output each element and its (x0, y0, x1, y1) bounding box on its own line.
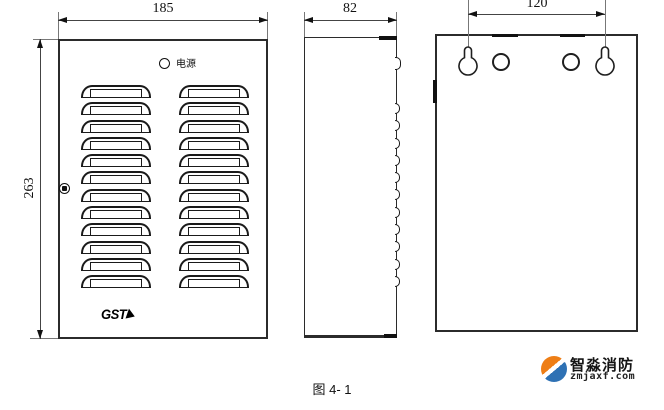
bump (395, 207, 400, 218)
bump (395, 241, 400, 252)
dim-arrow-down (37, 330, 43, 339)
dim-label-side-depth: 82 (341, 1, 359, 17)
side-bottom-mark (384, 334, 397, 338)
bump (395, 259, 400, 270)
dim-arrow-left (58, 17, 67, 23)
figure-caption: 图 4- 1 (0, 379, 664, 398)
technical-drawing-page: 185 263 电源 GST 82 120 (0, 0, 664, 410)
watermark-site: zmjaxf.com (570, 371, 635, 382)
side-latch-bump (395, 57, 401, 70)
gst-logo-text: GST (101, 307, 126, 323)
louver (179, 102, 249, 115)
side-louver-bumps (395, 103, 400, 287)
round-hole-left (492, 53, 510, 71)
louver (179, 258, 249, 271)
louver (81, 120, 151, 133)
dimension-line-front-height (40, 39, 41, 339)
louver (81, 102, 151, 115)
bump (395, 172, 400, 183)
power-led-indicator (159, 58, 170, 69)
bump (395, 189, 400, 200)
louver (81, 275, 151, 288)
louver (179, 85, 249, 98)
louver (179, 137, 249, 150)
louver (179, 241, 249, 254)
louver (179, 171, 249, 184)
bump (395, 103, 400, 114)
louver (179, 120, 249, 133)
side-top-flange (379, 36, 397, 40)
louver (81, 206, 151, 219)
bump (395, 138, 400, 149)
louver (81, 241, 151, 254)
extension-line (605, 0, 606, 47)
dim-label-hole-spacing: 120 (525, 0, 550, 12)
dim-arrow-right (259, 17, 268, 23)
louver (81, 137, 151, 150)
dim-arrow-up (37, 39, 43, 48)
dim-arrow-right (596, 11, 605, 17)
louver (81, 223, 151, 236)
bump (395, 155, 400, 166)
dimension-line-hole-spacing (468, 14, 605, 15)
dim-arrow-right (388, 17, 397, 23)
dim-label-front-width: 185 (151, 1, 176, 17)
mounting-keyhole-right (593, 45, 617, 79)
louver (179, 206, 249, 219)
dim-arrow-left (468, 11, 477, 17)
panel-lock-keyhole (59, 183, 70, 194)
watermark-logo-icon (541, 356, 567, 382)
bump (395, 224, 400, 235)
power-led-label: 电源 (176, 60, 196, 70)
louver (179, 154, 249, 167)
back-top-slot-left (492, 34, 518, 37)
side-view-outline (304, 37, 397, 338)
bump (395, 120, 400, 131)
louver (179, 189, 249, 202)
louver (179, 223, 249, 236)
back-top-slot-right (560, 34, 585, 37)
dimension-line-front-width (58, 20, 268, 21)
round-hole-right (562, 53, 580, 71)
dim-label-front-height: 263 (22, 176, 38, 201)
louver-column-right (179, 85, 249, 288)
mounting-keyhole-left (456, 45, 480, 79)
extension-line (304, 12, 305, 37)
louver (179, 275, 249, 288)
dimension-line-side-depth (304, 20, 397, 21)
extension-line (396, 12, 397, 37)
bump (395, 276, 400, 287)
louver (81, 189, 151, 202)
extension-line (30, 338, 58, 339)
louver (81, 171, 151, 184)
louver (81, 154, 151, 167)
louver (81, 258, 151, 271)
back-left-edge-tick (433, 80, 437, 103)
louver-column-left (81, 85, 151, 288)
gst-logo-arrow-icon (126, 309, 137, 322)
gst-brand-logo: GST (101, 308, 135, 322)
extension-line (468, 0, 469, 47)
louver (81, 85, 151, 98)
dim-arrow-left (304, 17, 313, 23)
